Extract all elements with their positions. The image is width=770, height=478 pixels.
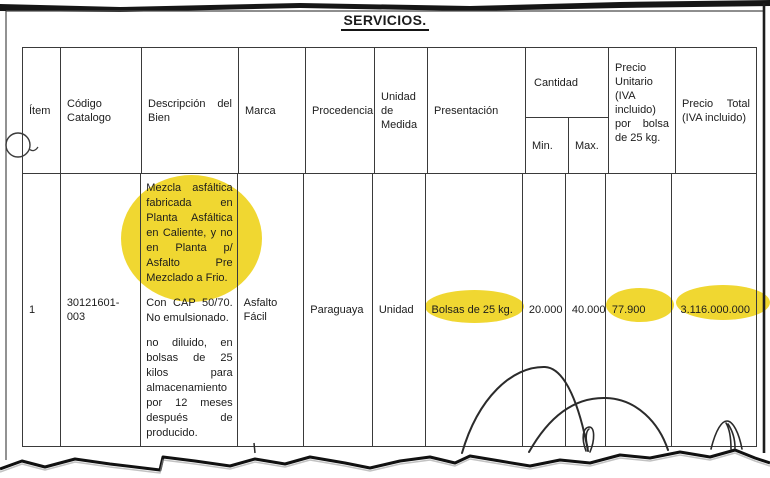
scanned-document-page: SERVICIOS. Ítem Código Catalogo Descripc… (0, 0, 770, 478)
header-cantidad-subrow: Min. Max. (526, 118, 608, 173)
header-cantidad-min: Min. (526, 118, 569, 173)
header-presentacion: Presentación (428, 48, 526, 173)
torn-edge-shadow (0, 453, 770, 473)
descripcion-parrafo-resaltado: Mezcla asfáltica fabricada en Planta Asf… (146, 181, 232, 286)
cell-unidad-de-medida: Unidad (373, 174, 426, 446)
header-unidad-de-medida: Unidad de Medida (375, 48, 428, 173)
header-cantidad-group: Cantidad Min. Max. (526, 48, 609, 173)
table-header-row: Ítem Código Catalogo Descripción del Bie… (23, 48, 756, 174)
header-precio-unitario: Precio Unitario (IVA incluido) por bolsa… (609, 48, 676, 173)
header-cantidad: Cantidad (526, 48, 608, 118)
section-title: SERVICIOS. (0, 12, 770, 30)
cell-descripcion-del-bien: Mezcla asfáltica fabricada en Planta Asf… (141, 174, 237, 446)
header-marca: Marca (239, 48, 306, 173)
cell-precio-unitario: 77.900 (606, 174, 673, 446)
descripcion-parrafo-cap: Con CAP 50/70. No emulsionado. (146, 296, 232, 326)
scan-top-edge (0, 0, 770, 12)
cell-item: 1 (23, 174, 61, 446)
descripcion-parrafo-almacenamiento: no diluido, en bolsas de 25 kilos para a… (146, 336, 232, 441)
servicios-table: Ítem Código Catalogo Descripción del Bie… (22, 47, 757, 447)
section-title-text: SERVICIOS. (341, 12, 430, 31)
cell-presentacion: Bolsas de 25 kg. (426, 174, 523, 446)
cell-cantidad-max: 40.000 (566, 174, 612, 446)
cell-cantidad-min: 20.000 (523, 174, 566, 446)
cell-precio-total: 3.116.000.000 (672, 174, 756, 446)
cell-procedencia: Paraguaya (304, 174, 373, 446)
cell-cantidad-group: 20.000 40.000 (523, 174, 606, 446)
table-row: 1 30121601-003 Mezcla asfáltica fabricad… (23, 174, 756, 446)
header-codigo-catalogo: Código Catalogo (61, 48, 142, 173)
torn-bottom-edge (0, 450, 770, 470)
header-cantidad-max: Max. (569, 118, 608, 173)
cell-codigo-catalogo: 30121601-003 (61, 174, 141, 446)
cell-marca: Asfalto Fácil (238, 174, 305, 446)
header-descripcion-del-bien: Descripción del Bien (142, 48, 239, 173)
header-item: Ítem (23, 48, 61, 173)
header-procedencia: Procedencia (306, 48, 375, 173)
header-precio-total: Precio Total (IVA incluido) (676, 48, 756, 173)
